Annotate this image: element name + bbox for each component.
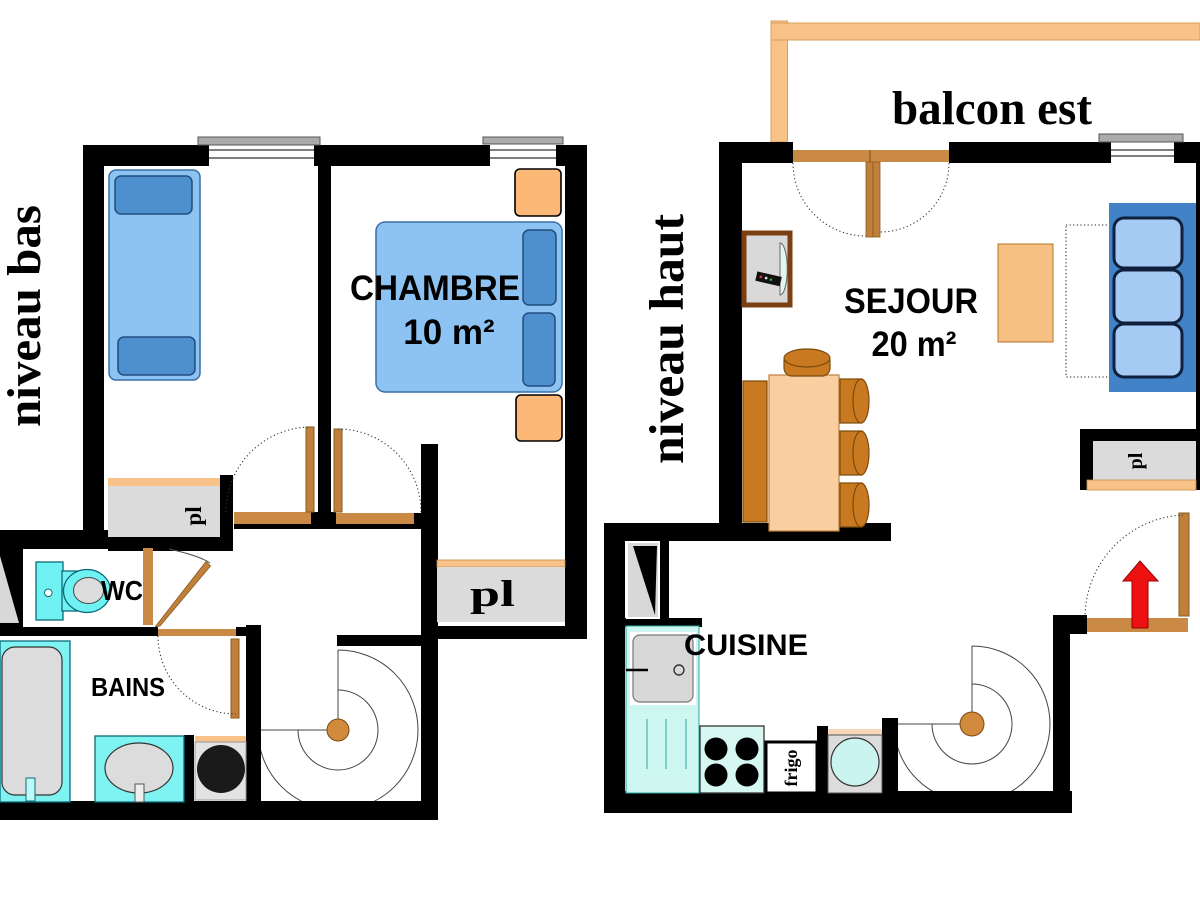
svg-text:SEJOUR: SEJOUR bbox=[844, 282, 978, 321]
svg-text:frigo: frigo bbox=[781, 750, 801, 787]
svg-text:niveau bas: niveau bas bbox=[0, 205, 51, 427]
svg-text:niveau haut: niveau haut bbox=[639, 213, 694, 464]
svg-text:pl: pl bbox=[470, 574, 515, 615]
svg-text:balcon est: balcon est bbox=[892, 82, 1092, 135]
svg-text:WC: WC bbox=[101, 575, 143, 606]
svg-text:pl: pl bbox=[181, 506, 206, 525]
svg-text:CUISINE: CUISINE bbox=[684, 629, 808, 662]
svg-text:BAINS: BAINS bbox=[91, 672, 165, 702]
svg-text:CHAMBRE: CHAMBRE bbox=[350, 269, 520, 308]
svg-text:pl: pl bbox=[1125, 452, 1147, 469]
svg-text:20 m²: 20 m² bbox=[872, 325, 957, 364]
svg-text:10 m²: 10 m² bbox=[403, 313, 494, 352]
